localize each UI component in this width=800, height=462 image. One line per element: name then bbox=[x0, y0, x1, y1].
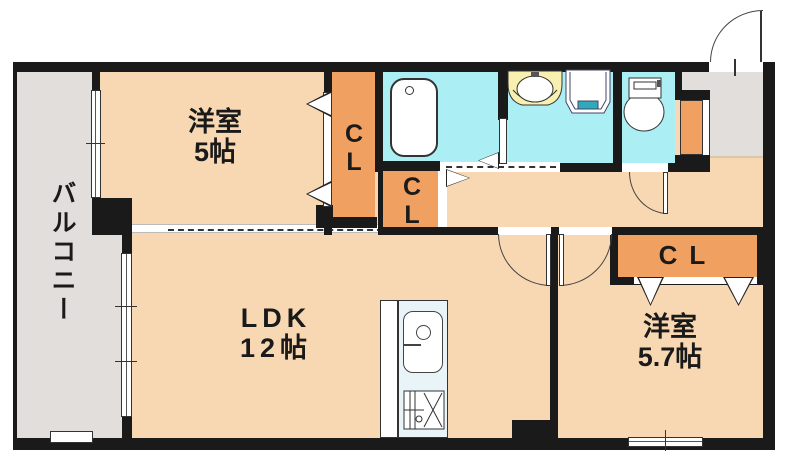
wall-track-pier bbox=[316, 205, 333, 228]
east-bedroom-size: 5.7帖 bbox=[585, 342, 755, 372]
entry-floor-main bbox=[710, 90, 763, 157]
entrance-door-opening bbox=[709, 62, 763, 72]
toilet-icon bbox=[621, 76, 667, 134]
window-west-bedroom-pane bbox=[95, 91, 96, 197]
entrance-door-leaf bbox=[760, 11, 762, 62]
balcony-floor-lower bbox=[92, 235, 122, 438]
wall-closet-west-bottom bbox=[332, 217, 377, 228]
label-ldk: LDK 12帖 bbox=[196, 303, 356, 363]
floorplan: 洋室 5帖 LDK 12帖 洋室 5.7帖 バルコニー C L C L CL bbox=[0, 0, 800, 462]
east-bedroom-name: 洋室 bbox=[585, 312, 755, 342]
wall-ldk-west-lower bbox=[122, 417, 132, 440]
ldk-name: LDK bbox=[196, 303, 356, 333]
closet-hall-side bbox=[438, 170, 447, 227]
entrance-door-arc bbox=[710, 10, 763, 62]
bathroom-door bbox=[499, 118, 507, 164]
washing-machine-pan-icon bbox=[564, 69, 612, 115]
bathtub-icon bbox=[390, 78, 438, 157]
washbasin-icon bbox=[506, 70, 564, 112]
wall-door-pier bbox=[551, 227, 559, 235]
wall-washroom-south bbox=[560, 163, 622, 172]
wall-room-divider bbox=[550, 235, 558, 420]
west-bedroom-size: 5帖 bbox=[140, 137, 290, 167]
closet-west-letter-l: L bbox=[338, 148, 370, 176]
window-west-bedroom bbox=[91, 90, 101, 198]
gas-stove-icon bbox=[403, 390, 445, 430]
balcony-opening bbox=[50, 431, 93, 443]
entry-floor bbox=[682, 72, 763, 90]
window-east-bedroom-tick bbox=[665, 430, 666, 451]
label-closet-west: C L bbox=[338, 120, 370, 176]
closet-hall-letter-l: L bbox=[396, 201, 428, 229]
shoe-cabinet-icon bbox=[680, 100, 703, 155]
wall-ldk-west-upper bbox=[122, 230, 132, 253]
ldk-size: 12帖 bbox=[196, 333, 356, 363]
label-balcony: バルコニー bbox=[48, 180, 76, 325]
ldk-door-leaf bbox=[546, 234, 551, 286]
label-closet-east: CL bbox=[612, 241, 764, 270]
faucet-handle bbox=[404, 344, 421, 346]
washroom-door-dashed-line bbox=[446, 166, 556, 168]
kitchen-counter-side bbox=[380, 300, 398, 438]
window-ldk-tick-2 bbox=[115, 361, 137, 362]
east-bedroom-door-leaf bbox=[559, 234, 564, 286]
toilet-door-leaf bbox=[663, 172, 668, 214]
shoe-cabinet-side bbox=[703, 100, 710, 155]
west-bedroom-name: 洋室 bbox=[140, 107, 290, 137]
wall-wbed-east-top bbox=[324, 72, 332, 92]
wall-wbed-west-pier bbox=[92, 72, 100, 92]
faucet-icon bbox=[416, 325, 431, 340]
entrance-door-tick bbox=[734, 59, 736, 76]
wall-toilet-door-jamb bbox=[668, 163, 710, 172]
closet-hall-letter-c: C bbox=[396, 173, 428, 201]
wall-cabinet-top bbox=[675, 90, 710, 100]
label-west-bedroom: 洋室 5帖 bbox=[140, 107, 290, 167]
label-closet-hall: C L bbox=[396, 173, 428, 229]
wall-bath-bottom bbox=[380, 161, 440, 171]
wall-cabinet-bottom bbox=[675, 155, 710, 163]
wall-balcony-left bbox=[13, 62, 17, 450]
bathtub-drain bbox=[405, 86, 414, 95]
window-ldk-pane bbox=[126, 254, 127, 416]
closet-west-letter-c: C bbox=[338, 120, 370, 148]
toilet-door-opening bbox=[622, 163, 668, 172]
window-west-bedroom-tick bbox=[86, 143, 105, 144]
kitchen-sink-icon bbox=[403, 311, 443, 373]
window-ldk-tick-1 bbox=[115, 306, 137, 307]
wall-closet-hall-left bbox=[378, 170, 383, 227]
wall-closet-west-east bbox=[375, 72, 383, 172]
wall-divider-foot bbox=[512, 420, 558, 438]
label-east-bedroom: 洋室 5.7帖 bbox=[585, 312, 755, 372]
partition-dashed-line bbox=[168, 229, 383, 231]
